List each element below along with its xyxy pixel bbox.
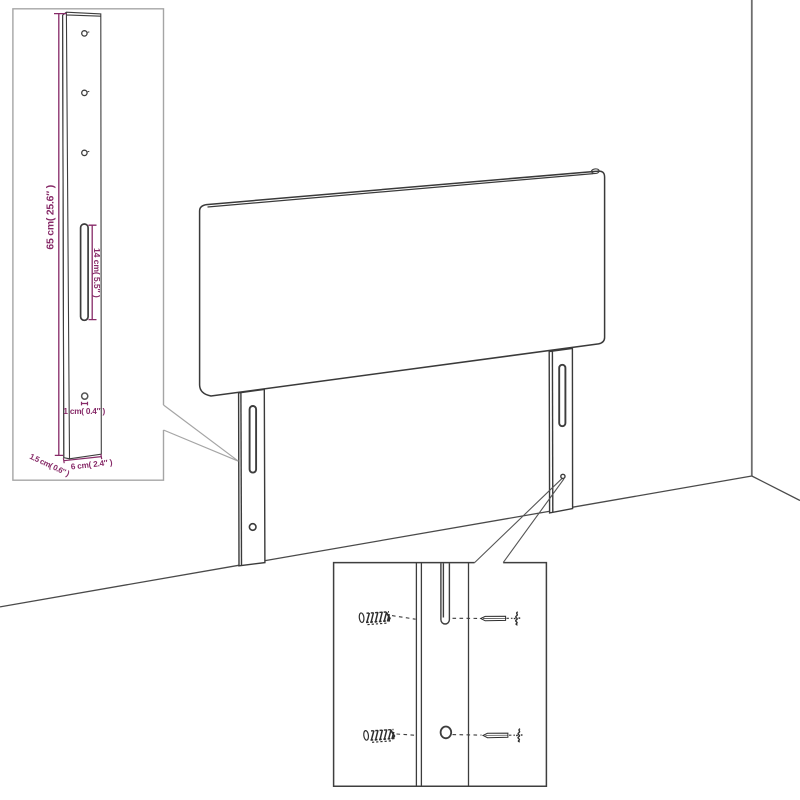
svg-text:14 cm( 5.5″ ): 14 cm( 5.5″ ) xyxy=(92,248,102,298)
svg-text:1 cm( 0.4″ ): 1 cm( 0.4″ ) xyxy=(63,407,105,416)
svg-text:65 cm( 25.6″ ): 65 cm( 25.6″ ) xyxy=(46,185,57,250)
